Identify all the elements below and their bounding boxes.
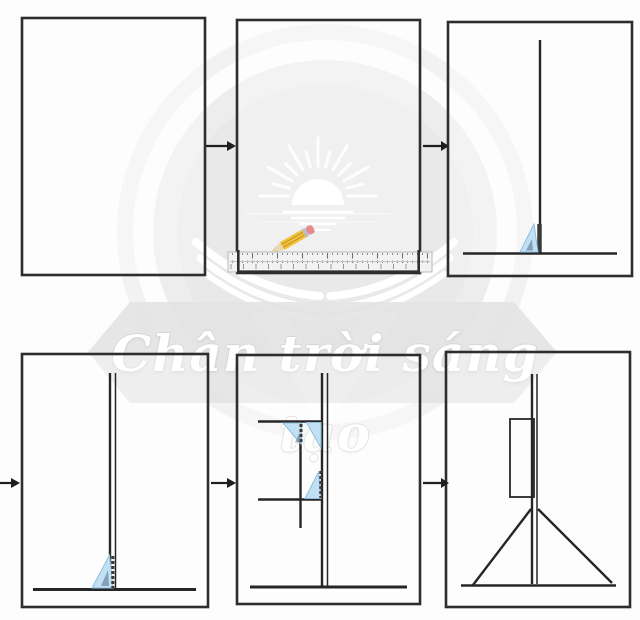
- arrow-right-icon: [206, 141, 236, 151]
- step-5-panel: [237, 355, 420, 604]
- construction-steps-figure: Chân trời sáng tạo: [0, 0, 640, 620]
- arrow-right-icon: [423, 141, 449, 151]
- step-6-panel: [446, 352, 630, 607]
- step-1-panel: [22, 18, 205, 275]
- ruler-icon: [228, 252, 432, 272]
- arrow-right-icon: [211, 478, 236, 488]
- steps-diagram: [0, 0, 640, 620]
- arrow-right-icon: [0, 478, 20, 488]
- step-2-panel: [237, 20, 420, 273]
